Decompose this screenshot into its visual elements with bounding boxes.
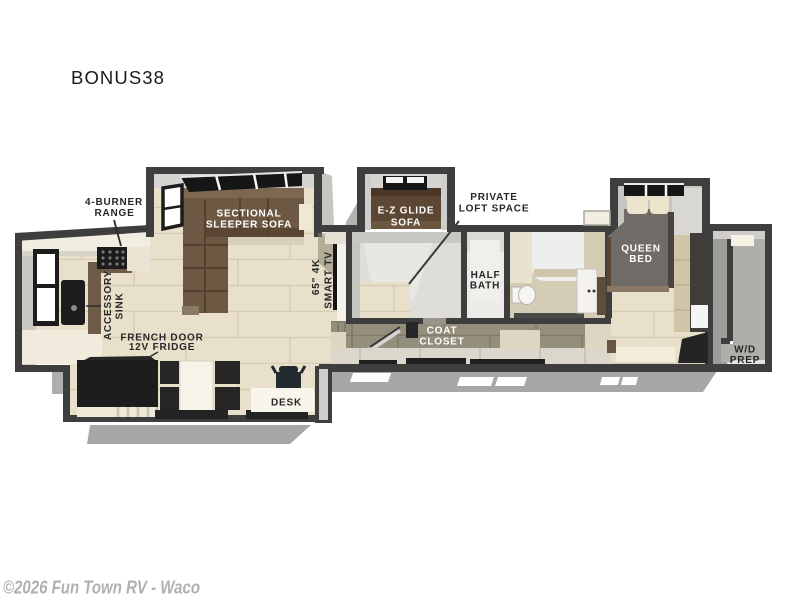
svg-text:PREP: PREP [730,355,760,366]
svg-text:LOFT SPACE: LOFT SPACE [459,204,530,215]
svg-text:12V FRIDGE: 12V FRIDGE [129,342,195,353]
svg-text:PRIVATE: PRIVATE [470,192,517,203]
svg-text:BONUS38: BONUS38 [71,67,165,88]
svg-text:SECTIONAL: SECTIONAL [217,209,282,220]
svg-text:W/D: W/D [734,344,756,355]
svg-text:65" 4K: 65" 4K [311,259,322,295]
svg-text:QUEEN: QUEEN [621,243,661,254]
svg-text:HALF: HALF [471,270,501,281]
svg-text:DESK: DESK [271,398,302,409]
svg-text:SLEEPER SOFA: SLEEPER SOFA [206,220,292,231]
svg-text:E-Z GLIDE: E-Z GLIDE [378,205,435,216]
svg-text:COAT: COAT [427,325,458,336]
svg-text:©2026 Fun Town RV - Waco: ©2026 Fun Town RV - Waco [3,578,200,598]
svg-text:SMART TV: SMART TV [324,251,335,309]
svg-text:ACCESSORY: ACCESSORY [103,270,114,340]
svg-text:RANGE: RANGE [94,208,134,219]
svg-text:BATH: BATH [470,281,500,292]
svg-text:CLOSET: CLOSET [419,337,464,348]
svg-text:4-BURNER: 4-BURNER [85,197,143,208]
svg-text:SOFA: SOFA [391,217,421,228]
svg-text:SINK: SINK [115,292,126,319]
svg-text:BED: BED [629,254,653,265]
